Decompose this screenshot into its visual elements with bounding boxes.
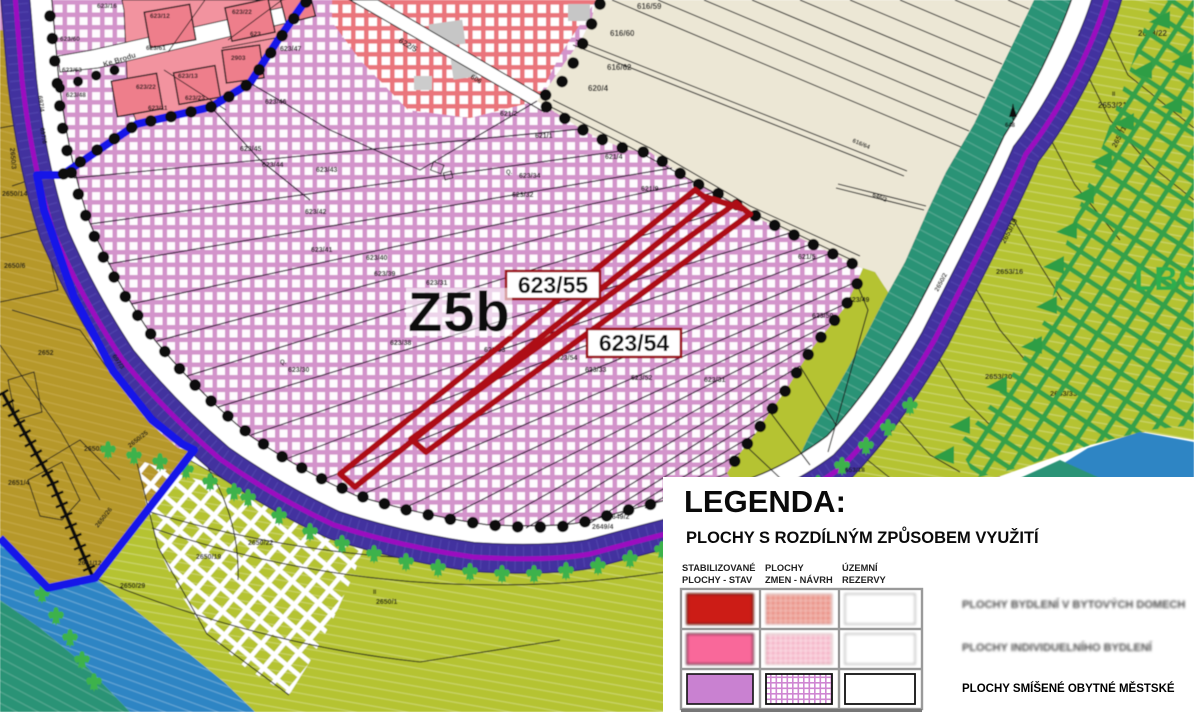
- svg-text:Z5b: Z5b: [408, 280, 511, 343]
- svg-text:616/62: 616/62: [607, 63, 632, 72]
- svg-text:623/45: 623/45: [240, 146, 262, 153]
- svg-text:623/39: 623/39: [374, 271, 396, 278]
- svg-text:ZMEN - NÁVRH: ZMEN - NÁVRH: [765, 575, 833, 585]
- svg-text:REZERVY: REZERVY: [842, 575, 887, 585]
- svg-text:STABILIZOVANÉ: STABILIZOVANÉ: [682, 563, 756, 573]
- svg-text:623: 623: [250, 31, 261, 38]
- svg-text:623/48: 623/48: [66, 92, 86, 99]
- svg-text:623/55: 623/55: [518, 272, 589, 298]
- svg-text:PLOCHY INDIVIDUELNÍHO BYDLENÍ: PLOCHY INDIVIDUELNÍHO BYDLENÍ: [962, 641, 1153, 654]
- svg-text:2650/22: 2650/22: [248, 540, 273, 547]
- svg-text:621/5: 621/5: [798, 254, 816, 261]
- svg-text:623/13: 623/13: [178, 73, 198, 80]
- svg-text:653/18: 653/18: [845, 467, 865, 474]
- svg-text:623/22: 623/22: [232, 9, 252, 16]
- svg-text:2650/19: 2650/19: [196, 554, 221, 561]
- svg-text:623/22: 623/22: [136, 84, 156, 91]
- svg-text:623/33: 623/33: [585, 367, 607, 374]
- svg-text:II: II: [373, 590, 377, 596]
- svg-text:2650/29: 2650/29: [120, 583, 145, 590]
- svg-text:623/54: 623/54: [599, 330, 670, 356]
- svg-text:2651/12: 2651/12: [78, 560, 102, 567]
- svg-text:623/30: 623/30: [288, 367, 310, 374]
- svg-text:PLOCHY - STAV: PLOCHY - STAV: [682, 575, 753, 585]
- svg-text:Q.: Q.: [280, 360, 287, 366]
- svg-text:621/4: 621/4: [605, 154, 623, 161]
- svg-text:621/9: 621/9: [641, 186, 659, 193]
- svg-text:623/60: 623/60: [60, 36, 80, 43]
- svg-text:623/16: 623/16: [97, 3, 117, 10]
- svg-text:2653/16: 2653/16: [996, 267, 1023, 276]
- svg-text:623/46: 623/46: [265, 99, 287, 106]
- svg-text:648: 648: [1005, 123, 1016, 129]
- svg-text:623/23: 623/23: [185, 95, 205, 102]
- svg-text:623/63: 623/63: [62, 67, 82, 74]
- svg-text:2653/30: 2653/30: [985, 372, 1012, 381]
- svg-text:620/4: 620/4: [588, 84, 609, 93]
- svg-text:623/42: 623/42: [305, 209, 327, 216]
- svg-text:623/47: 623/47: [280, 46, 302, 53]
- svg-text:PLOCHY S ROZDÍLNÝM ZPŮSOBEM VY: PLOCHY S ROZDÍLNÝM ZPŮSOBEM VYUŽITÍ: [686, 527, 1039, 547]
- svg-text:ÚZEMNÍ: ÚZEMNÍ: [842, 562, 878, 573]
- svg-text:2652: 2652: [38, 350, 54, 357]
- svg-text:623/43: 623/43: [316, 167, 338, 174]
- svg-text:PLOCHY SMÍŠENÉ OBYTNÉ MĚSTSKÉ: PLOCHY SMÍŠENÉ OBYTNÉ MĚSTSKÉ: [962, 682, 1175, 695]
- svg-text:2651/4: 2651/4: [8, 480, 30, 487]
- svg-text:PLOCHY BYDLENÍ V BYTOVÝCH DOME: PLOCHY BYDLENÍ V BYTOVÝCH DOMECH: [962, 598, 1185, 611]
- svg-text:616/59: 616/59: [637, 2, 662, 11]
- svg-text:623/12: 623/12: [150, 13, 170, 20]
- svg-text:621/1: 621/1: [535, 133, 553, 140]
- svg-text:PLOCHY: PLOCHY: [765, 563, 805, 573]
- svg-text:2650/1: 2650/1: [376, 599, 398, 606]
- svg-text:623/34: 623/34: [519, 173, 541, 180]
- svg-text:623/41: 623/41: [311, 247, 333, 254]
- svg-text:623/61: 623/61: [146, 45, 166, 52]
- svg-text:2650/14: 2650/14: [2, 191, 27, 198]
- svg-text:623/32: 623/32: [512, 192, 534, 199]
- svg-text:LEGENDA:: LEGENDA:: [684, 484, 846, 519]
- svg-text:616/60: 616/60: [610, 29, 635, 38]
- svg-text:2649/4: 2649/4: [592, 524, 614, 531]
- svg-text:2903: 2903: [231, 55, 246, 62]
- svg-text:II: II: [1112, 92, 1116, 98]
- svg-text:623/11: 623/11: [148, 105, 168, 112]
- svg-text:623/40: 623/40: [366, 255, 388, 262]
- svg-text:Q.: Q.: [506, 170, 513, 176]
- svg-text:621/2: 621/2: [500, 111, 518, 118]
- svg-text:623/31: 623/31: [704, 377, 726, 384]
- svg-text:2650/6: 2650/6: [4, 263, 26, 270]
- svg-text:LBC: LBC: [1134, 260, 1194, 297]
- svg-text:623/52: 623/52: [631, 375, 653, 382]
- svg-text:623/44: 623/44: [262, 162, 284, 169]
